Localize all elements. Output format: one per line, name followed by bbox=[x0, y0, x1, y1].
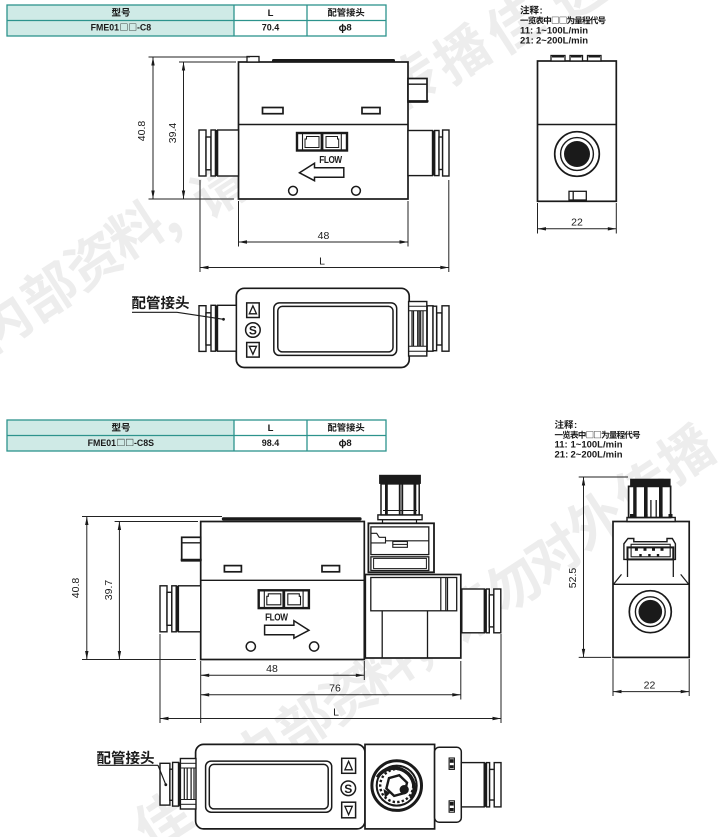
svg-text:L: L bbox=[268, 423, 274, 434]
svg-text:40.8: 40.8 bbox=[70, 578, 82, 599]
svg-text:FME01: FME01 bbox=[91, 23, 119, 33]
svg-text:-C8S: -C8S bbox=[134, 438, 154, 448]
svg-text:48: 48 bbox=[318, 230, 330, 242]
svg-text:FLOW: FLOW bbox=[319, 154, 342, 165]
svg-text:52.5: 52.5 bbox=[567, 568, 579, 589]
svg-text:98.4: 98.4 bbox=[262, 438, 280, 448]
svg-text:21:: 21: bbox=[555, 450, 569, 461]
svg-text:S: S bbox=[249, 324, 257, 338]
svg-text:22: 22 bbox=[644, 680, 656, 692]
svg-text:76: 76 bbox=[329, 683, 341, 695]
svg-text:39.7: 39.7 bbox=[103, 580, 115, 601]
svg-text:FLOW: FLOW bbox=[265, 612, 288, 623]
svg-text:L: L bbox=[268, 8, 274, 19]
svg-text:39.4: 39.4 bbox=[167, 123, 179, 144]
svg-text:S: S bbox=[344, 782, 352, 796]
svg-text:FME01: FME01 bbox=[88, 438, 116, 448]
svg-text:21:: 21: bbox=[520, 36, 534, 47]
svg-text:40.8: 40.8 bbox=[136, 121, 148, 142]
svg-text:L: L bbox=[319, 256, 325, 268]
svg-text:L: L bbox=[333, 707, 339, 719]
svg-text:48: 48 bbox=[266, 663, 278, 675]
svg-text:2~200L/min: 2~200L/min bbox=[571, 450, 623, 461]
svg-text:70.4: 70.4 bbox=[262, 23, 280, 33]
svg-text:22: 22 bbox=[571, 217, 583, 229]
svg-text:2~200L/min: 2~200L/min bbox=[536, 36, 588, 47]
svg-text:-C8: -C8 bbox=[137, 23, 151, 33]
svg-text:8: 8 bbox=[346, 438, 351, 449]
svg-text::: : bbox=[540, 6, 543, 17]
svg-text::: : bbox=[574, 420, 577, 431]
svg-text:8: 8 bbox=[346, 23, 351, 34]
